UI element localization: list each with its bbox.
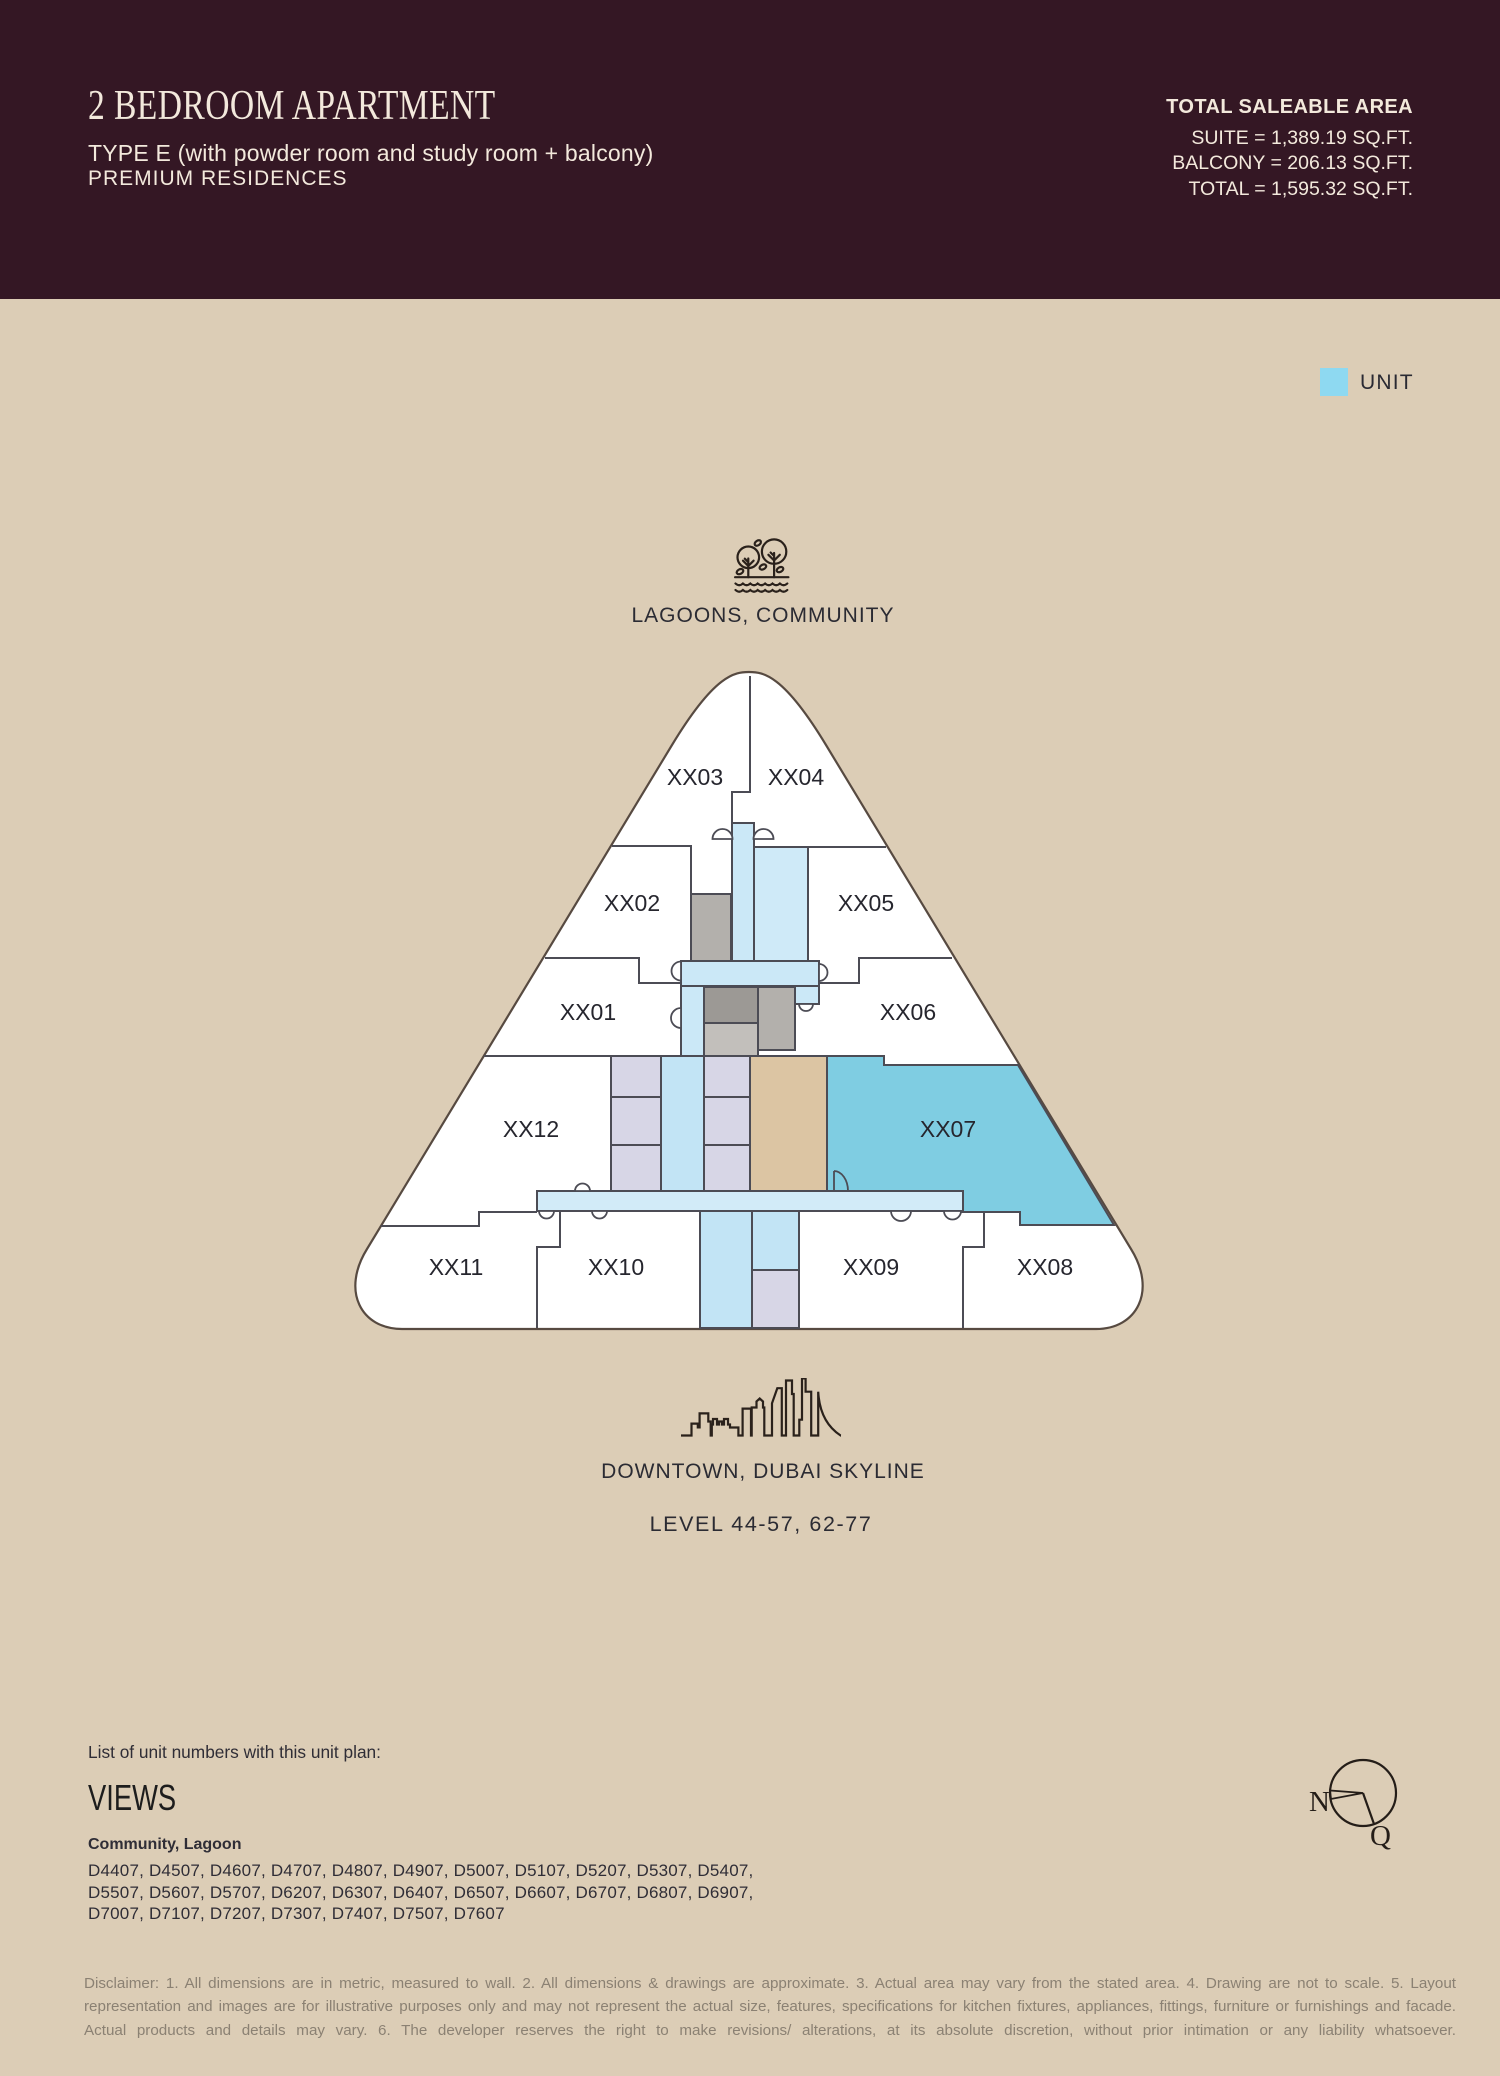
- svg-text:XX07: XX07: [920, 1116, 976, 1142]
- svg-text:XX09: XX09: [843, 1254, 899, 1280]
- svg-text:XX01: XX01: [560, 999, 616, 1025]
- svg-text:XX05: XX05: [838, 890, 894, 916]
- svg-text:XX02: XX02: [604, 890, 660, 916]
- svg-text:N: N: [1309, 1786, 1330, 1818]
- svg-text:XX12: XX12: [503, 1116, 559, 1142]
- svg-text:XX03: XX03: [667, 764, 723, 790]
- svg-text:XX08: XX08: [1017, 1254, 1073, 1280]
- svg-text:XX11: XX11: [429, 1254, 484, 1280]
- svg-text:XX04: XX04: [768, 764, 824, 790]
- svg-text:XX10: XX10: [588, 1254, 644, 1280]
- svg-text:Q: Q: [1370, 1820, 1391, 1852]
- svg-text:XX06: XX06: [880, 999, 936, 1025]
